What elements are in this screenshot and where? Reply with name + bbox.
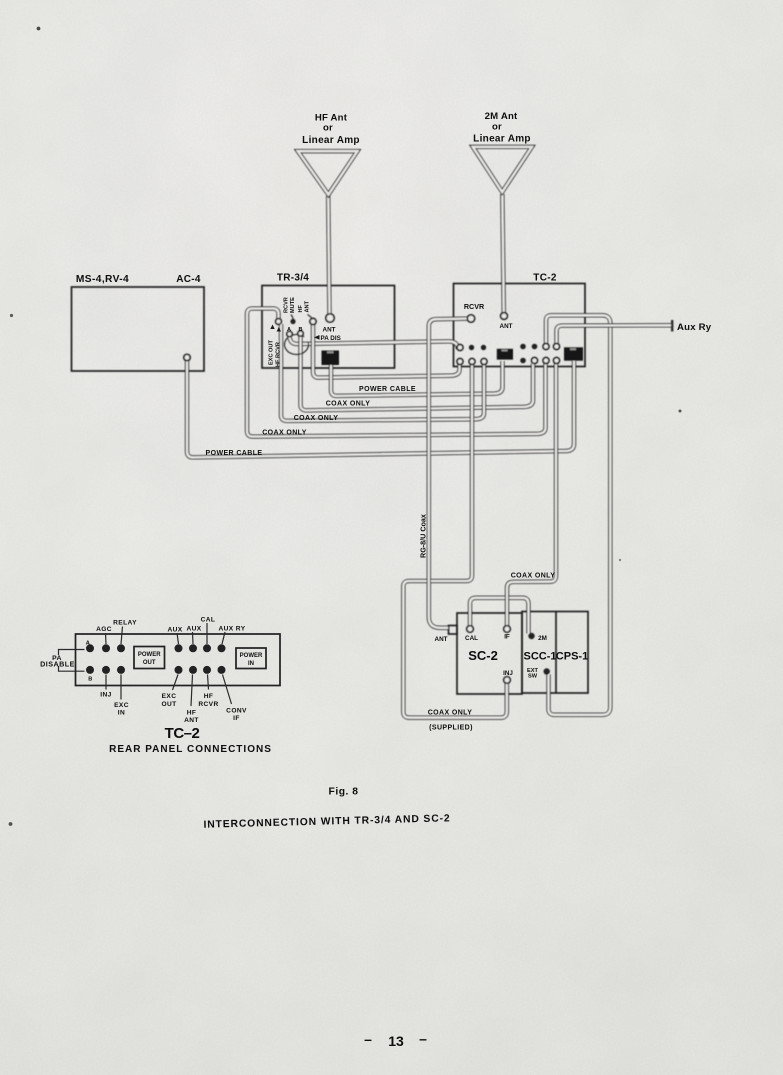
svg-text:B: B bbox=[298, 327, 302, 333]
svg-text:POWER CABLE: POWER CABLE bbox=[206, 450, 263, 457]
svg-text:Aux Ry: Aux Ry bbox=[677, 322, 712, 333]
svg-text:TC–2: TC–2 bbox=[165, 725, 200, 742]
svg-text:CAL: CAL bbox=[201, 617, 216, 624]
svg-text:AUX: AUX bbox=[186, 626, 201, 633]
svg-text:HF: HF bbox=[298, 304, 304, 312]
svg-text:13: 13 bbox=[388, 1033, 404, 1049]
svg-text:SCC-1: SCC-1 bbox=[523, 651, 556, 663]
svg-text:AUX RY: AUX RY bbox=[218, 626, 245, 633]
svg-text:EXC: EXC bbox=[162, 693, 177, 700]
svg-text:A: A bbox=[86, 641, 90, 647]
svg-text:Linear Amp: Linear Amp bbox=[473, 134, 531, 145]
svg-text:RELAY: RELAY bbox=[113, 620, 137, 627]
svg-text:AC-4: AC-4 bbox=[176, 274, 201, 285]
svg-text:COAX ONLY: COAX ONLY bbox=[428, 710, 473, 717]
svg-text:COAX ONLY: COAX ONLY bbox=[294, 415, 339, 422]
svg-text:EXC OUT: EXC OUT bbox=[269, 340, 275, 365]
svg-text:POWER CABLE: POWER CABLE bbox=[359, 386, 416, 393]
svg-text:EXC: EXC bbox=[114, 702, 129, 709]
svg-text:–: – bbox=[419, 1031, 427, 1047]
svg-text:SW: SW bbox=[528, 674, 538, 680]
svg-text:HF RCVR: HF RCVR bbox=[276, 342, 282, 367]
svg-text:DISABLE: DISABLE bbox=[40, 659, 75, 668]
svg-text:(SUPPLIED): (SUPPLIED) bbox=[429, 725, 473, 732]
svg-text:IF: IF bbox=[504, 634, 510, 641]
svg-text:Fig. 8: Fig. 8 bbox=[329, 787, 359, 798]
svg-text:AUX: AUX bbox=[167, 627, 182, 634]
svg-text:RCVR: RCVR bbox=[284, 297, 290, 313]
svg-text:ANT: ANT bbox=[435, 636, 448, 643]
svg-text:RCVR: RCVR bbox=[198, 701, 218, 708]
svg-text:HF: HF bbox=[204, 693, 214, 700]
svg-text:MS-4,RV-4: MS-4,RV-4 bbox=[76, 274, 129, 285]
svg-text:REAR PANEL CONNECTIONS: REAR PANEL CONNECTIONS bbox=[109, 744, 272, 755]
svg-text:POWER: POWER bbox=[240, 653, 263, 659]
svg-text:AGC: AGC bbox=[96, 626, 112, 633]
svg-text:COAX ONLY: COAX ONLY bbox=[511, 573, 556, 580]
svg-text:CPS-1: CPS-1 bbox=[556, 651, 588, 663]
svg-text:INJ: INJ bbox=[503, 670, 513, 677]
svg-text:A: A bbox=[287, 327, 291, 333]
svg-text:IN: IN bbox=[118, 710, 125, 717]
svg-text:Linear Amp: Linear Amp bbox=[302, 135, 360, 146]
svg-text:OUT: OUT bbox=[143, 660, 156, 666]
svg-text:OUT: OUT bbox=[161, 701, 176, 708]
svg-text:HF: HF bbox=[187, 710, 197, 717]
svg-text:2M: 2M bbox=[538, 635, 547, 642]
svg-text:B: B bbox=[88, 677, 92, 683]
svg-text:CONV: CONV bbox=[226, 708, 247, 715]
svg-text:2M Ant: 2M Ant bbox=[485, 111, 518, 122]
svg-text:IF: IF bbox=[233, 715, 240, 722]
svg-text:ANT: ANT bbox=[305, 300, 311, 312]
svg-text:RCVR: RCVR bbox=[464, 302, 485, 311]
svg-text:TR-3/4: TR-3/4 bbox=[277, 273, 309, 284]
svg-text:SC-2: SC-2 bbox=[468, 648, 498, 663]
svg-text:RG-8/U Coax: RG-8/U Coax bbox=[419, 514, 428, 558]
svg-text:or: or bbox=[492, 122, 502, 133]
svg-text:ANT: ANT bbox=[500, 323, 513, 330]
svg-text:PA DIS: PA DIS bbox=[321, 335, 341, 342]
svg-text:COAX ONLY: COAX ONLY bbox=[326, 401, 371, 408]
svg-text:TC-2: TC-2 bbox=[533, 273, 557, 284]
svg-text:POWER: POWER bbox=[138, 652, 161, 658]
svg-text:CAL: CAL bbox=[465, 635, 478, 642]
svg-text:–: – bbox=[364, 1031, 372, 1047]
svg-text:ANT: ANT bbox=[184, 717, 199, 724]
svg-text:COAX ONLY: COAX ONLY bbox=[262, 430, 307, 437]
svg-text:or: or bbox=[323, 123, 333, 134]
svg-text:INJ: INJ bbox=[100, 692, 111, 699]
svg-text:MUTE: MUTE bbox=[290, 297, 296, 313]
svg-text:IN: IN bbox=[248, 661, 254, 667]
svg-text:ANT: ANT bbox=[323, 327, 336, 334]
